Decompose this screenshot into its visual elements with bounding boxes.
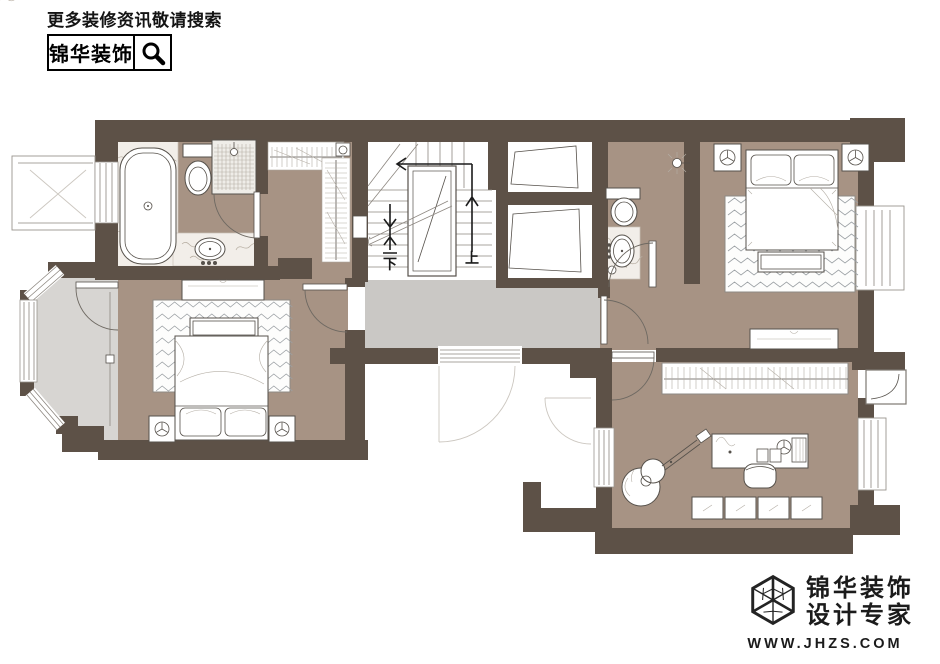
cube-logo-icon (747, 572, 799, 633)
study-bottom-wall (595, 528, 853, 554)
search-tagline: 更多装修资讯敬请搜索 (47, 6, 222, 31)
bedroom-study-wall (656, 348, 858, 362)
void-area-lines (439, 366, 591, 444)
closet-stair-wall (352, 138, 368, 282)
brand-search-box: 锦华装饰 (47, 34, 172, 71)
stair-stringer (408, 166, 456, 276)
hall-bottom-wall-right (520, 348, 612, 364)
footer-logo-block: 锦华装饰 设计专家 WWW.JHZS.COM (736, 572, 914, 652)
left-bedroom-right-wall (345, 330, 365, 458)
bathroom-bottom-wall (95, 266, 280, 280)
desk-chair (744, 464, 776, 488)
search-icon (133, 36, 170, 69)
footer-website: WWW.JHZS.COM (736, 636, 914, 652)
footer-brand-line2: 设计专家 (806, 603, 914, 630)
toilet2-tank (606, 188, 640, 199)
marble-squiggle (0, 0, 20, 1)
pillow (225, 408, 266, 436)
floor-plan: 下 上 (0, 0, 940, 664)
stair-up-label: 上 (465, 251, 479, 267)
bathroom-left-window (95, 162, 118, 223)
balcony-left-window (20, 300, 37, 382)
study-right-window (858, 418, 886, 490)
pillow (180, 408, 221, 436)
page: 下 上 (0, 0, 940, 664)
toilet-tank (183, 144, 213, 157)
bottom-right-corner-wall (850, 505, 900, 535)
balcony-top-wall (58, 262, 118, 278)
faucet2-dots (607, 243, 611, 259)
nightstand (842, 144, 869, 171)
hall-threshold-steps (438, 346, 522, 364)
stairwell-floor (366, 140, 592, 280)
window-latch (106, 355, 114, 363)
footer-brand-line1: 锦华装饰 (806, 576, 914, 603)
desk-books (792, 438, 806, 462)
dresser (182, 280, 264, 300)
master-bedroom-window (856, 206, 904, 290)
left-bedroom-furniture (149, 280, 295, 442)
left-bedroom-bottom-wall (98, 440, 368, 460)
study-closet (662, 363, 848, 394)
corner-shelf (866, 370, 906, 404)
left-window-recess (12, 156, 95, 230)
shaft-right-wall (592, 138, 608, 288)
nightstand (269, 416, 295, 442)
wall-niche (353, 216, 367, 238)
desk (712, 434, 808, 468)
study-left-window (594, 428, 614, 487)
stair-down-label: 下 (383, 257, 397, 273)
nightstand (149, 416, 175, 442)
top-wall (95, 120, 860, 142)
hallway-floor (365, 280, 600, 348)
faucet-dots (201, 261, 217, 265)
shower-head-icon (231, 149, 238, 156)
shower (212, 140, 256, 194)
nightstand (714, 144, 741, 171)
brand-name: 锦华装饰 (49, 36, 133, 69)
header-watermark: 更多装修资讯敬请搜索 锦华装饰 (47, 6, 222, 71)
